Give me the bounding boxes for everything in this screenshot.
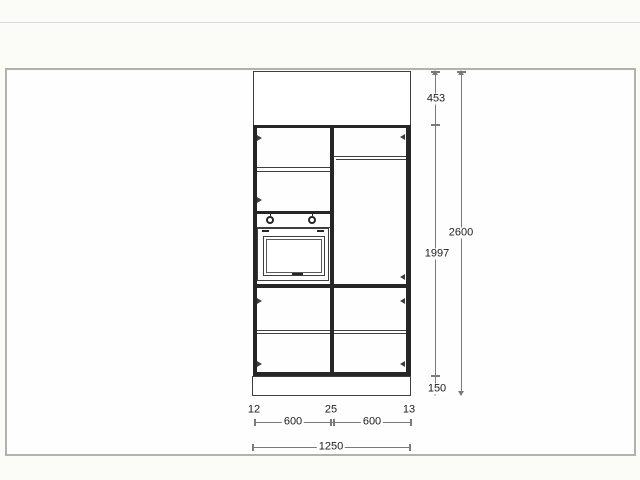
hinge-arrow-icon — [257, 361, 262, 367]
dim-label-plinth: 150 — [426, 384, 448, 395]
hinge-arrow-icon — [257, 197, 262, 203]
left-upper-door-gap — [257, 171, 330, 172]
right-upper-door-gap — [336, 159, 406, 160]
left-base-door-gap — [257, 330, 330, 331]
hinge-arrow-icon — [400, 361, 405, 367]
cabinet-right-panel — [406, 125, 411, 375]
oven-handle — [292, 273, 303, 275]
drawing-canvas: 453 1997 150 2600 12 25 13 600 600 1250 — [0, 0, 640, 480]
dim-tick — [431, 375, 440, 377]
right-upper-door-gap — [334, 156, 406, 157]
dim-label-left-filler: 12 — [246, 405, 262, 416]
oven-vent-slot — [262, 230, 269, 232]
dimension-line-heights — [435, 72, 436, 395]
dim-tick — [431, 71, 440, 73]
dim-label-total-width: 1250 — [317, 442, 345, 453]
dim-label-right-filler: 13 — [401, 405, 417, 416]
plinth — [252, 376, 411, 396]
left-base-door-gap — [257, 333, 330, 334]
oven-door-window-inner — [266, 239, 322, 273]
dim-label-left-unit-width: 600 — [282, 417, 304, 428]
hinge-arrow-icon — [257, 298, 262, 304]
counter-level-edge — [253, 284, 411, 288]
dim-arrow-icon — [458, 391, 464, 396]
soffit-outline — [253, 71, 411, 126]
dim-label-total-height: 2600 — [447, 228, 475, 239]
dim-label-right-unit-width: 600 — [361, 417, 383, 428]
dim-tick — [254, 419, 256, 426]
dim-label-upper-body: 1997 — [423, 249, 451, 260]
page-separator-line — [0, 22, 640, 23]
right-base-door-gap — [334, 330, 406, 331]
dim-tick — [431, 124, 440, 126]
dim-tick — [330, 419, 332, 426]
oven-vent-slot — [317, 230, 324, 232]
right-base-door-gap — [334, 333, 406, 334]
dim-tick — [252, 444, 254, 451]
hinge-arrow-icon — [400, 134, 405, 140]
dim-label-top-gap: 453 — [425, 94, 447, 105]
dim-tick — [409, 444, 411, 451]
oven-niche-top — [257, 211, 330, 214]
hinge-arrow-icon — [257, 135, 262, 141]
dim-tick — [457, 71, 466, 73]
dim-label-center-gap: 25 — [323, 405, 339, 416]
cabinet-center-divider — [330, 125, 334, 375]
left-upper-door-gap — [257, 167, 330, 168]
oven-knob-tick — [270, 213, 271, 216]
dim-tick — [333, 419, 335, 426]
dim-tick — [410, 419, 412, 426]
oven-knob-icon — [308, 216, 316, 224]
oven-knob-tick — [312, 213, 313, 216]
oven-knob-icon — [266, 216, 274, 224]
hinge-arrow-icon — [400, 298, 405, 304]
hinge-arrow-icon — [400, 274, 405, 280]
